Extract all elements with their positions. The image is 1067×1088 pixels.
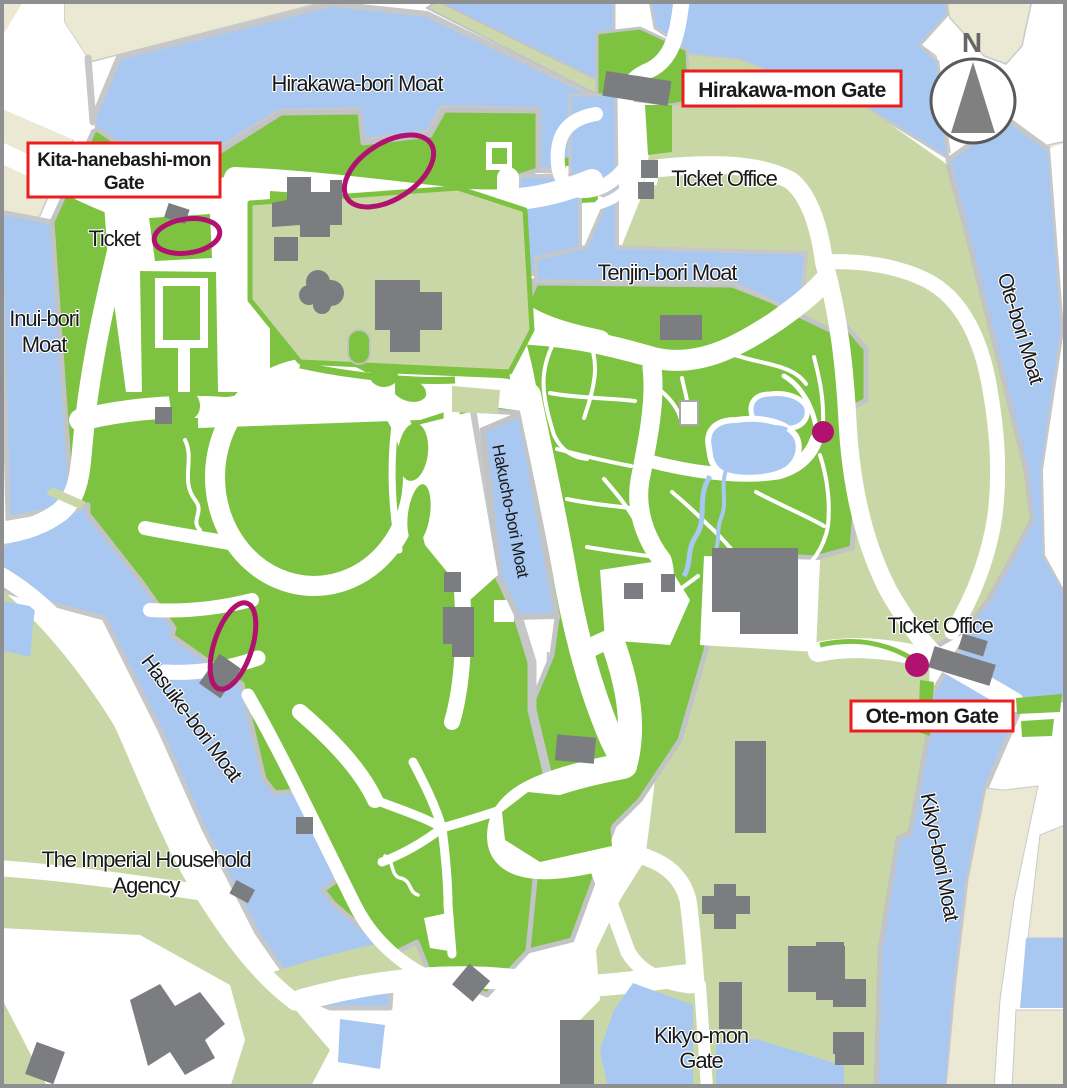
svg-text:Ticket Office: Ticket Office <box>887 613 993 638</box>
svg-text:Ticket Office: Ticket Office <box>671 166 777 191</box>
svg-text:Moat: Moat <box>22 332 67 357</box>
svg-text:The Imperial Household: The Imperial Household <box>41 847 250 872</box>
svg-text:Gate: Gate <box>104 173 144 194</box>
svg-text:Gate: Gate <box>679 1048 723 1073</box>
svg-text:Kikyo-mon: Kikyo-mon <box>654 1023 748 1048</box>
svg-text:Ote-mon Gate: Ote-mon Gate <box>866 705 999 728</box>
svg-text:Agency: Agency <box>113 873 181 898</box>
svg-text:Inui-bori: Inui-bori <box>9 306 79 331</box>
svg-text:Kita-hanebashi-mon: Kita-hanebashi-mon <box>37 150 211 171</box>
svg-text:Hirakawa-mon Gate: Hirakawa-mon Gate <box>698 79 886 102</box>
svg-text:Hirakawa-bori Moat: Hirakawa-bori Moat <box>272 71 444 96</box>
svg-text:Ticket: Ticket <box>88 226 140 251</box>
svg-text:Tenjin-bori Moat: Tenjin-bori Moat <box>598 260 738 285</box>
svg-text:N: N <box>962 27 982 58</box>
